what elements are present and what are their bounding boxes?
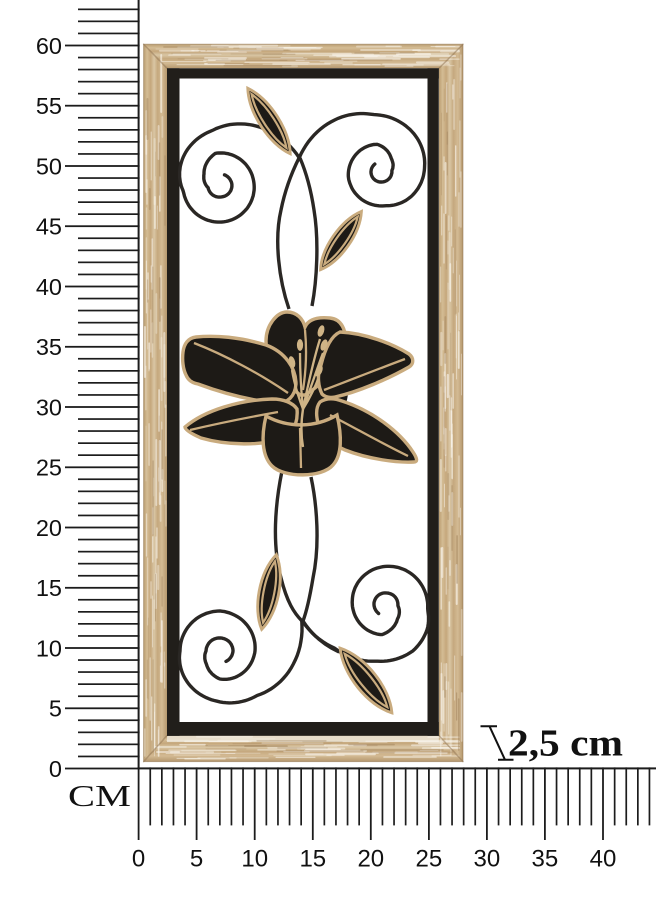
svg-text:5: 5 <box>190 846 203 873</box>
svg-text:40: 40 <box>36 274 62 300</box>
svg-text:55: 55 <box>36 93 62 119</box>
svg-text:40: 40 <box>590 846 617 873</box>
svg-text:0: 0 <box>132 846 145 873</box>
svg-text:25: 25 <box>36 455 62 481</box>
svg-text:50: 50 <box>36 153 62 179</box>
svg-text:20: 20 <box>357 846 384 873</box>
svg-text:5: 5 <box>49 696 62 722</box>
svg-text:60: 60 <box>36 33 62 59</box>
svg-text:25: 25 <box>416 846 443 873</box>
svg-text:2,5 cm: 2,5 cm <box>508 723 623 765</box>
svg-text:30: 30 <box>474 846 501 873</box>
svg-text:45: 45 <box>36 214 62 240</box>
svg-text:35: 35 <box>36 334 62 360</box>
svg-text:20: 20 <box>36 515 62 541</box>
svg-text:0: 0 <box>49 756 62 782</box>
svg-text:15: 15 <box>299 846 326 873</box>
svg-text:15: 15 <box>36 575 62 601</box>
svg-text:10: 10 <box>36 635 62 661</box>
svg-text:30: 30 <box>36 394 62 420</box>
svg-text:CM: CM <box>68 778 131 813</box>
svg-text:10: 10 <box>241 846 268 873</box>
svg-text:35: 35 <box>532 846 559 873</box>
